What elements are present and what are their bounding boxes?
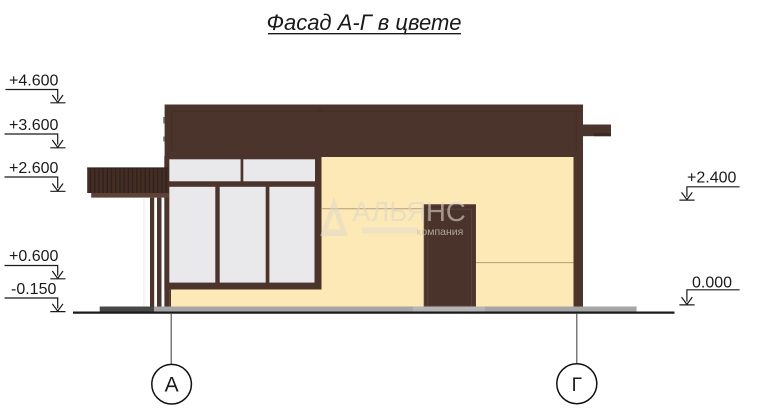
svg-text:+0.600: +0.600 [9, 248, 58, 265]
svg-text:+2.600: +2.600 [9, 160, 58, 177]
svg-text:АЛЬЯНС: АЛЬЯНС [352, 196, 465, 227]
svg-text:-0.150: -0.150 [11, 281, 56, 298]
svg-text:компания: компания [417, 226, 464, 238]
svg-text:Г: Г [572, 375, 582, 396]
svg-text:+2.400: +2.400 [687, 170, 736, 187]
svg-text:0.000: 0.000 [692, 275, 732, 292]
svg-text:А: А [165, 374, 179, 397]
svg-text:+4.600: +4.600 [9, 73, 58, 90]
svg-text:Фасад А-Г в цвете: Фасад А-Г в цвете [266, 10, 461, 35]
svg-text:+3.600: +3.600 [9, 117, 58, 134]
